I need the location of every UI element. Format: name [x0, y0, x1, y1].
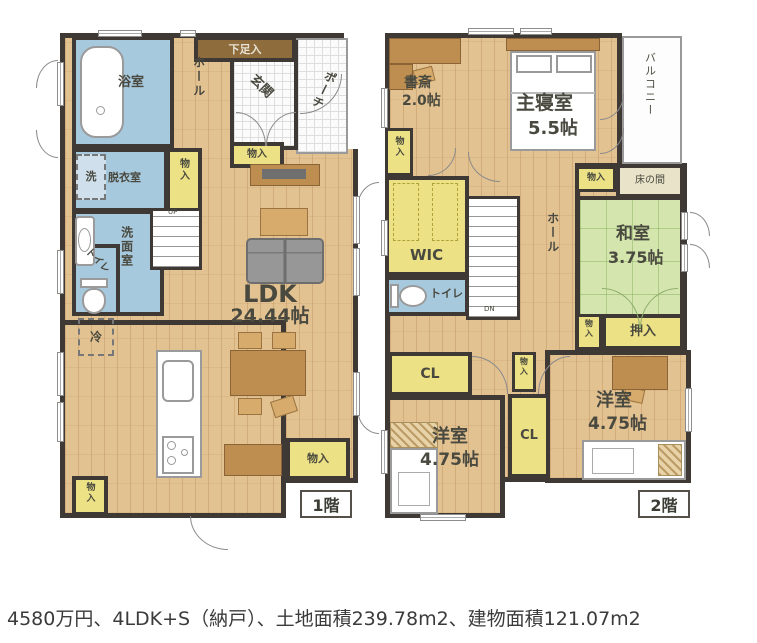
- west2-name: 洋室: [596, 392, 632, 411]
- window: [353, 196, 360, 244]
- window: [681, 212, 688, 240]
- casement-window-arc: [36, 130, 58, 158]
- bed-pillow-area: [390, 422, 438, 448]
- washroom-label: 洗面室: [120, 226, 133, 296]
- wic-label: WIC: [410, 248, 443, 264]
- dressing-room-label: 脱衣室: [108, 172, 141, 184]
- washitsu-name: 和室: [616, 226, 650, 244]
- ldk-label-group: LDK 24.44帖: [205, 282, 335, 327]
- storage-center-label: 物入: [519, 357, 527, 387]
- casement-window-arc: [357, 182, 379, 208]
- toilet2-tank: [390, 284, 399, 308]
- washer-label: 洗: [86, 171, 97, 183]
- bed-pillow-area: [658, 444, 682, 476]
- floorplan-image: 浴室 ホール 下足入 玄関 ポーチ 洗 脱衣室 物入 物入 洗面室 トイレ 冷 …: [0, 0, 757, 643]
- master-size: 5.5帖: [528, 120, 578, 139]
- shoe-closet-label: 下足入: [229, 41, 262, 57]
- stove-burner: [167, 441, 176, 450]
- stove-burner: [167, 456, 176, 465]
- window: [420, 514, 466, 521]
- refrigerator: 冷: [78, 318, 114, 356]
- west1-size: 4.75帖: [420, 452, 479, 470]
- dining-chair: [238, 398, 262, 415]
- floor1-label: 1階: [312, 492, 339, 516]
- tv: [262, 169, 306, 179]
- window: [57, 402, 64, 442]
- pillow: [556, 55, 592, 73]
- storage-entrance-label: 物入: [247, 150, 267, 161]
- stairs-dn-label: DN: [484, 306, 495, 313]
- bathroom-label: 浴室: [118, 76, 144, 90]
- casement-window-arc: [357, 408, 379, 434]
- stairs-up-label: UP: [168, 209, 177, 216]
- window: [353, 248, 360, 296]
- casement-window-arc: [690, 244, 710, 268]
- window: [381, 430, 388, 474]
- window: [381, 220, 388, 256]
- master-name: 主寝室: [516, 94, 573, 114]
- staircase-2f: [466, 196, 520, 320]
- closet-rail: [393, 183, 419, 241]
- closet-north: CL: [388, 352, 472, 396]
- storage-study-label: 物入: [393, 136, 402, 170]
- ldk-size: 24.44帖: [205, 307, 335, 327]
- storage-ldk: 物入: [286, 438, 350, 480]
- tokonoma-label: 床の間: [635, 176, 665, 187]
- toilet2-bowl: [399, 285, 427, 307]
- listing-caption: 4580万円、4LDK+S（納戸）、土地面積239.78m2、建物面積121.0…: [7, 604, 641, 631]
- desk-1f: [224, 444, 282, 476]
- dining-table: [230, 350, 306, 396]
- storage-dressing-label: 物入: [177, 158, 188, 204]
- sofa: [246, 238, 324, 284]
- study-desk: [389, 38, 461, 64]
- staircase-1f: [150, 208, 202, 270]
- closet-center: CL: [508, 394, 550, 478]
- bed-blanket: [398, 472, 430, 506]
- hall1-label: ホール: [192, 56, 205, 136]
- storage-hall: 物入: [576, 166, 616, 192]
- coffee-table: [260, 208, 308, 236]
- window: [57, 62, 64, 106]
- pillow: [516, 55, 552, 73]
- dining-chair: [238, 332, 262, 349]
- window: [57, 352, 64, 396]
- window: [520, 28, 552, 35]
- bathtub: [80, 46, 124, 138]
- casement-window-arc: [36, 60, 58, 88]
- window: [685, 388, 692, 432]
- window: [180, 30, 196, 37]
- storage-kitchen-label: 物入: [84, 482, 93, 512]
- hall2-label: ホール: [546, 212, 559, 292]
- stove-burner: [181, 449, 188, 456]
- bed-blanket: [592, 448, 634, 474]
- washing-machine: 洗: [76, 154, 106, 200]
- bathtub-drain: [96, 106, 105, 115]
- closet-rail: [432, 183, 458, 241]
- fridge-label: 冷: [90, 331, 102, 344]
- window: [681, 244, 688, 272]
- window: [57, 250, 64, 294]
- study-name: 書斎: [404, 76, 432, 91]
- storage-hall-label: 物入: [587, 174, 605, 183]
- kitchen-sink: [162, 360, 194, 402]
- bed-headboard: [506, 38, 600, 51]
- desk-west2: [612, 356, 668, 390]
- study-size: 2.0帖: [402, 94, 441, 109]
- window: [468, 28, 514, 35]
- storage-washitsu-label: 物入: [584, 319, 592, 347]
- west2-size: 4.75帖: [588, 416, 647, 434]
- dining-chair: [272, 332, 296, 349]
- cl-center-label: CL: [520, 429, 538, 443]
- floor1-label-box: 1階: [300, 490, 352, 518]
- kitchen-stove: [162, 436, 194, 474]
- storage-ldk-label: 物入: [307, 453, 329, 465]
- floor2-label-box: 2階: [638, 490, 690, 518]
- ldk-name: LDK: [205, 282, 335, 307]
- toilet-bowl: [82, 288, 106, 314]
- window: [98, 30, 142, 37]
- shoe-closet: 下足入: [194, 36, 296, 62]
- toilet2-label: トイレ: [430, 288, 463, 300]
- floor2-label: 2階: [650, 492, 677, 516]
- window: [353, 372, 360, 416]
- toilet-tank: [80, 278, 108, 288]
- casement-window-arc: [690, 212, 710, 236]
- tokonoma: 床の間: [616, 164, 684, 198]
- balcony-label: バルコニー: [644, 52, 656, 152]
- west1-name: 洋室: [432, 428, 468, 447]
- back-door-arc: [190, 516, 228, 550]
- window: [381, 88, 388, 128]
- cl-north-label: CL: [420, 367, 439, 382]
- washitsu-size: 3.75帖: [608, 250, 663, 267]
